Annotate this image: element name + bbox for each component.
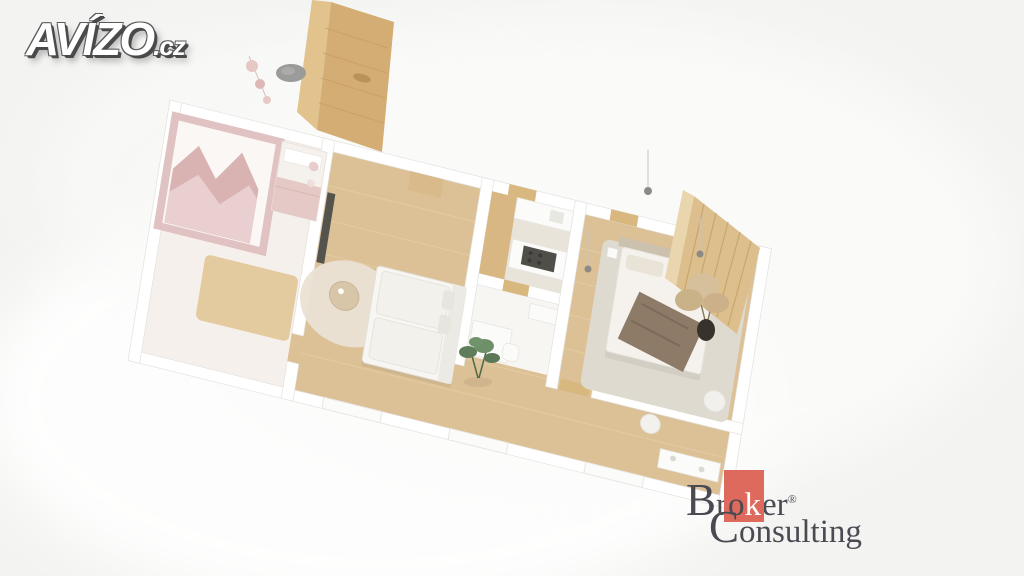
nightstand (607, 247, 618, 259)
broker-consulting-logo: Broker® Consulting (674, 476, 914, 562)
plant-pot (697, 319, 715, 341)
sofa (362, 265, 467, 384)
listing-photo-3d-floorplan: AVÍZO.cz Broker® Consulting (0, 0, 1024, 576)
broker-logo-line2: Consulting (709, 505, 862, 550)
avizo-text: AVÍZO (26, 13, 153, 65)
avizo-suffix: .cz (153, 31, 185, 61)
registered-mark: ® (788, 492, 797, 506)
avizo-watermark: AVÍZO.cz (26, 16, 185, 62)
gray-pouf (276, 64, 306, 82)
